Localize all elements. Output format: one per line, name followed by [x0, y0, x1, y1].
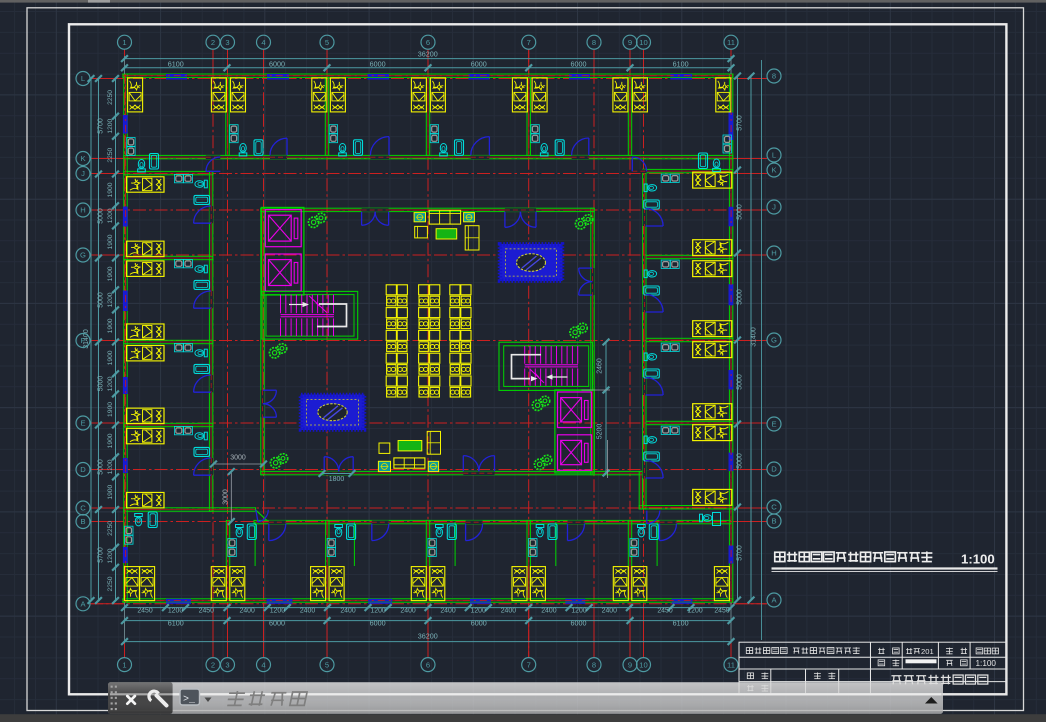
svg-text:6000: 6000	[269, 618, 285, 627]
svg-text:B: B	[80, 517, 85, 526]
svg-text:H: H	[80, 206, 85, 215]
svg-text:2250: 2250	[107, 521, 114, 536]
svg-text:7: 7	[527, 660, 531, 669]
svg-text:1:100: 1:100	[976, 659, 997, 668]
svg-text:K: K	[80, 154, 85, 163]
svg-text:6100: 6100	[168, 618, 184, 627]
svg-text:C: C	[771, 503, 777, 512]
svg-text:G: G	[80, 251, 86, 260]
svg-text:5000: 5000	[98, 376, 105, 392]
svg-text:D: D	[771, 465, 777, 474]
svg-text:9: 9	[628, 660, 632, 669]
svg-text:1: 1	[122, 660, 126, 669]
svg-text:201: 201	[921, 647, 934, 656]
svg-text:5000: 5000	[737, 453, 744, 469]
svg-text:E: E	[80, 419, 85, 428]
svg-text:5000: 5000	[737, 289, 744, 305]
svg-text:6: 6	[426, 38, 430, 47]
svg-text:1200: 1200	[270, 608, 285, 615]
svg-text:2400: 2400	[501, 608, 516, 615]
svg-text:6000: 6000	[571, 59, 587, 68]
svg-text:E: E	[771, 420, 776, 429]
svg-text:36200: 36200	[418, 50, 438, 59]
svg-text:5: 5	[325, 38, 329, 47]
svg-text:2: 2	[211, 38, 215, 47]
svg-text:5000: 5000	[98, 459, 105, 475]
svg-text:1200: 1200	[687, 608, 702, 615]
svg-text:36200: 36200	[418, 632, 438, 641]
svg-text:1200: 1200	[107, 548, 114, 563]
svg-text:1200: 1200	[168, 608, 183, 615]
svg-text:5000: 5000	[737, 204, 744, 220]
svg-text:B: B	[771, 517, 776, 526]
svg-text:1200: 1200	[107, 376, 114, 391]
svg-text:2400: 2400	[400, 608, 415, 615]
svg-text:2450: 2450	[714, 608, 729, 615]
svg-text:>_: >_	[183, 695, 196, 706]
svg-text:L: L	[772, 151, 776, 160]
svg-text:5: 5	[325, 660, 329, 669]
svg-text:3000: 3000	[223, 489, 230, 505]
svg-text:1900: 1900	[107, 266, 114, 281]
svg-text:6000: 6000	[571, 618, 587, 627]
svg-text:1200: 1200	[107, 292, 114, 307]
svg-text:1:100: 1:100	[961, 551, 995, 566]
svg-text:2400: 2400	[440, 608, 455, 615]
svg-text:11: 11	[727, 660, 735, 669]
svg-text:1900: 1900	[107, 350, 114, 365]
svg-text:5700: 5700	[98, 547, 105, 563]
svg-text:G: G	[771, 336, 777, 345]
svg-text:6100: 6100	[673, 59, 689, 68]
svg-text:6000: 6000	[370, 59, 386, 68]
svg-text:11: 11	[727, 38, 735, 47]
svg-text:1900: 1900	[107, 182, 114, 197]
svg-text:2450: 2450	[137, 608, 152, 615]
svg-text:5200: 5200	[597, 424, 604, 440]
svg-text:1200: 1200	[471, 608, 486, 615]
svg-text:5000: 5000	[737, 374, 744, 390]
svg-text:2250: 2250	[107, 90, 114, 105]
svg-text:6000: 6000	[471, 59, 487, 68]
svg-text:2250: 2250	[107, 576, 114, 591]
svg-text:8: 8	[592, 38, 596, 47]
svg-text:6000: 6000	[269, 59, 285, 68]
svg-text:1200: 1200	[107, 118, 114, 133]
svg-text:5000: 5000	[98, 292, 105, 308]
svg-text:2450: 2450	[657, 608, 672, 615]
svg-text:2400: 2400	[541, 608, 556, 615]
svg-text:K: K	[771, 166, 776, 175]
svg-text:2400: 2400	[340, 608, 355, 615]
svg-text:1200: 1200	[107, 459, 114, 474]
svg-text:4: 4	[261, 38, 265, 47]
svg-text:C: C	[80, 504, 86, 513]
svg-text:1200: 1200	[370, 608, 385, 615]
svg-text:1800: 1800	[329, 476, 345, 483]
svg-text:8: 8	[592, 660, 596, 669]
svg-text:7: 7	[527, 38, 531, 47]
svg-text:1900: 1900	[107, 402, 114, 417]
svg-text:1900: 1900	[107, 318, 114, 333]
svg-text:J: J	[81, 169, 85, 178]
svg-text:9: 9	[628, 38, 632, 47]
svg-text:1900: 1900	[107, 433, 114, 448]
svg-text:J: J	[772, 203, 776, 212]
svg-text:6000: 6000	[471, 618, 487, 627]
svg-text:H: H	[771, 249, 776, 258]
svg-text:6100: 6100	[673, 618, 689, 627]
svg-text:5000: 5000	[98, 208, 105, 224]
svg-text:2450: 2450	[199, 608, 214, 615]
svg-text:5700: 5700	[737, 115, 744, 131]
svg-text:2250: 2250	[107, 147, 114, 162]
svg-text:L: L	[81, 74, 85, 83]
svg-text:6: 6	[426, 660, 430, 669]
svg-text:31400: 31400	[751, 327, 758, 347]
svg-text:3: 3	[225, 660, 229, 669]
svg-text:1900: 1900	[107, 484, 114, 499]
svg-text:10: 10	[639, 660, 647, 669]
svg-text:2400: 2400	[300, 608, 315, 615]
svg-text:1200: 1200	[107, 208, 114, 223]
svg-text:2400: 2400	[602, 608, 617, 615]
svg-text:6000: 6000	[370, 618, 386, 627]
svg-text:6100: 6100	[168, 59, 184, 68]
svg-text:10: 10	[639, 38, 647, 47]
svg-text:1: 1	[122, 38, 126, 47]
svg-text:2460: 2460	[597, 358, 604, 374]
svg-text:D: D	[80, 465, 86, 474]
svg-text:5700: 5700	[737, 545, 744, 561]
svg-text:F: F	[81, 336, 86, 345]
svg-text:8: 8	[772, 72, 776, 81]
svg-text:2: 2	[211, 660, 215, 669]
svg-text:3: 3	[225, 38, 229, 47]
svg-text:3000: 3000	[230, 455, 246, 462]
svg-text:1200: 1200	[571, 608, 586, 615]
svg-text:4: 4	[261, 660, 265, 669]
svg-text:5700: 5700	[98, 118, 105, 134]
svg-text:1900: 1900	[107, 234, 114, 249]
svg-text:2400: 2400	[240, 608, 255, 615]
